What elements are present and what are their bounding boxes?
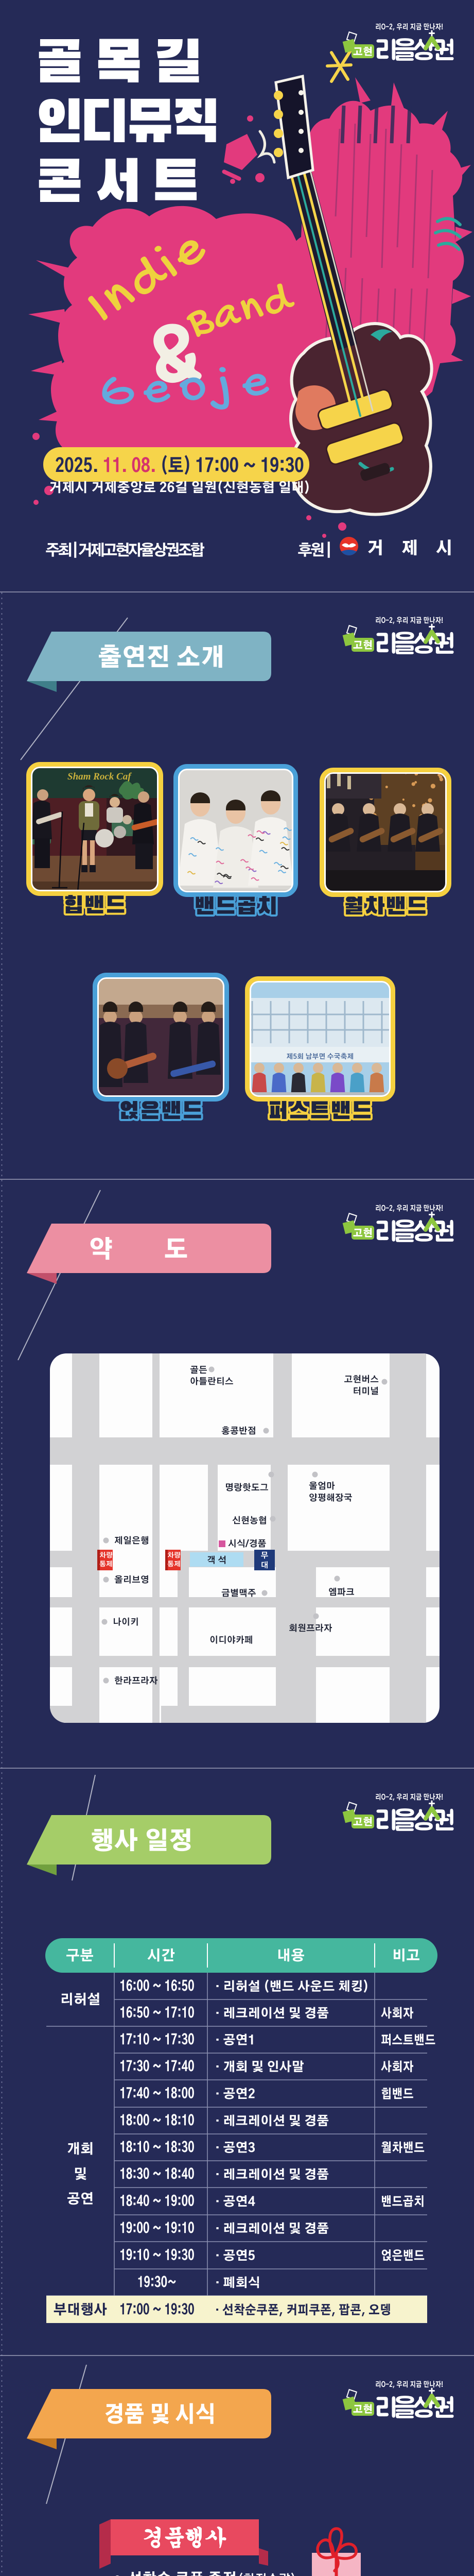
svg-text:Sham Rock Caf: Sham Rock Caf (67, 771, 132, 782)
